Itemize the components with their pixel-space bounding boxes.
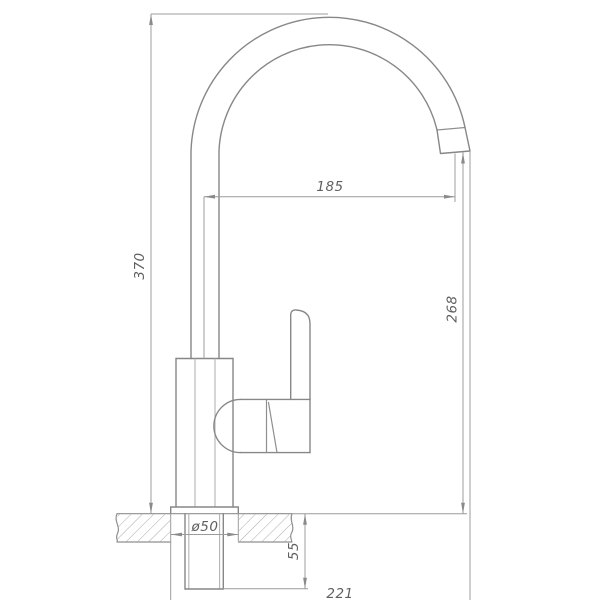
dim-370-arrow-up: [149, 14, 153, 25]
dim-55-label: 55: [286, 542, 302, 560]
dim-370-arrow-down: [149, 503, 153, 514]
deck-hatch-left: [118, 514, 171, 541]
dim-50-arrow-right: [227, 533, 238, 537]
dim-55-arrow-up: [303, 514, 307, 525]
dim-268-arrow-down: [461, 503, 465, 514]
dim-268-label: 268: [445, 295, 461, 322]
aerator-cap: [437, 128, 470, 154]
drawing-canvas: 370 185 268 55 ø50 221: [0, 0, 600, 600]
dim-50-label: ø50: [191, 519, 219, 535]
dim-221: 221: [326, 151, 470, 600]
deck-hatch-right: [239, 514, 292, 541]
dim-185-label: 185: [316, 179, 343, 195]
dim-185-arrow-right: [444, 195, 455, 199]
dim-55-arrow-down: [303, 578, 307, 589]
dim-221-label: 221: [326, 586, 353, 600]
dim-370: 370: [132, 14, 328, 514]
dim-50: ø50: [171, 514, 239, 600]
dim-185: 185: [204, 154, 455, 359]
lever-handle: [291, 310, 310, 399]
valve-housing-dome: [214, 399, 241, 452]
mounting-flange: [171, 507, 239, 514]
dim-268-arrow-up: [461, 153, 465, 164]
dim-370-label: 370: [132, 252, 148, 279]
spout-inner-wall-and-arc: [219, 45, 437, 359]
dim-268: 268: [292, 153, 467, 514]
dim-185-arrow-left: [204, 195, 215, 199]
faucet-technical-drawing: 370 185 268 55 ø50 221: [0, 0, 600, 600]
dim-50-arrow-left: [171, 533, 182, 537]
spout-joint-line: [437, 128, 465, 131]
lever-skirt-slant: [269, 403, 278, 453]
